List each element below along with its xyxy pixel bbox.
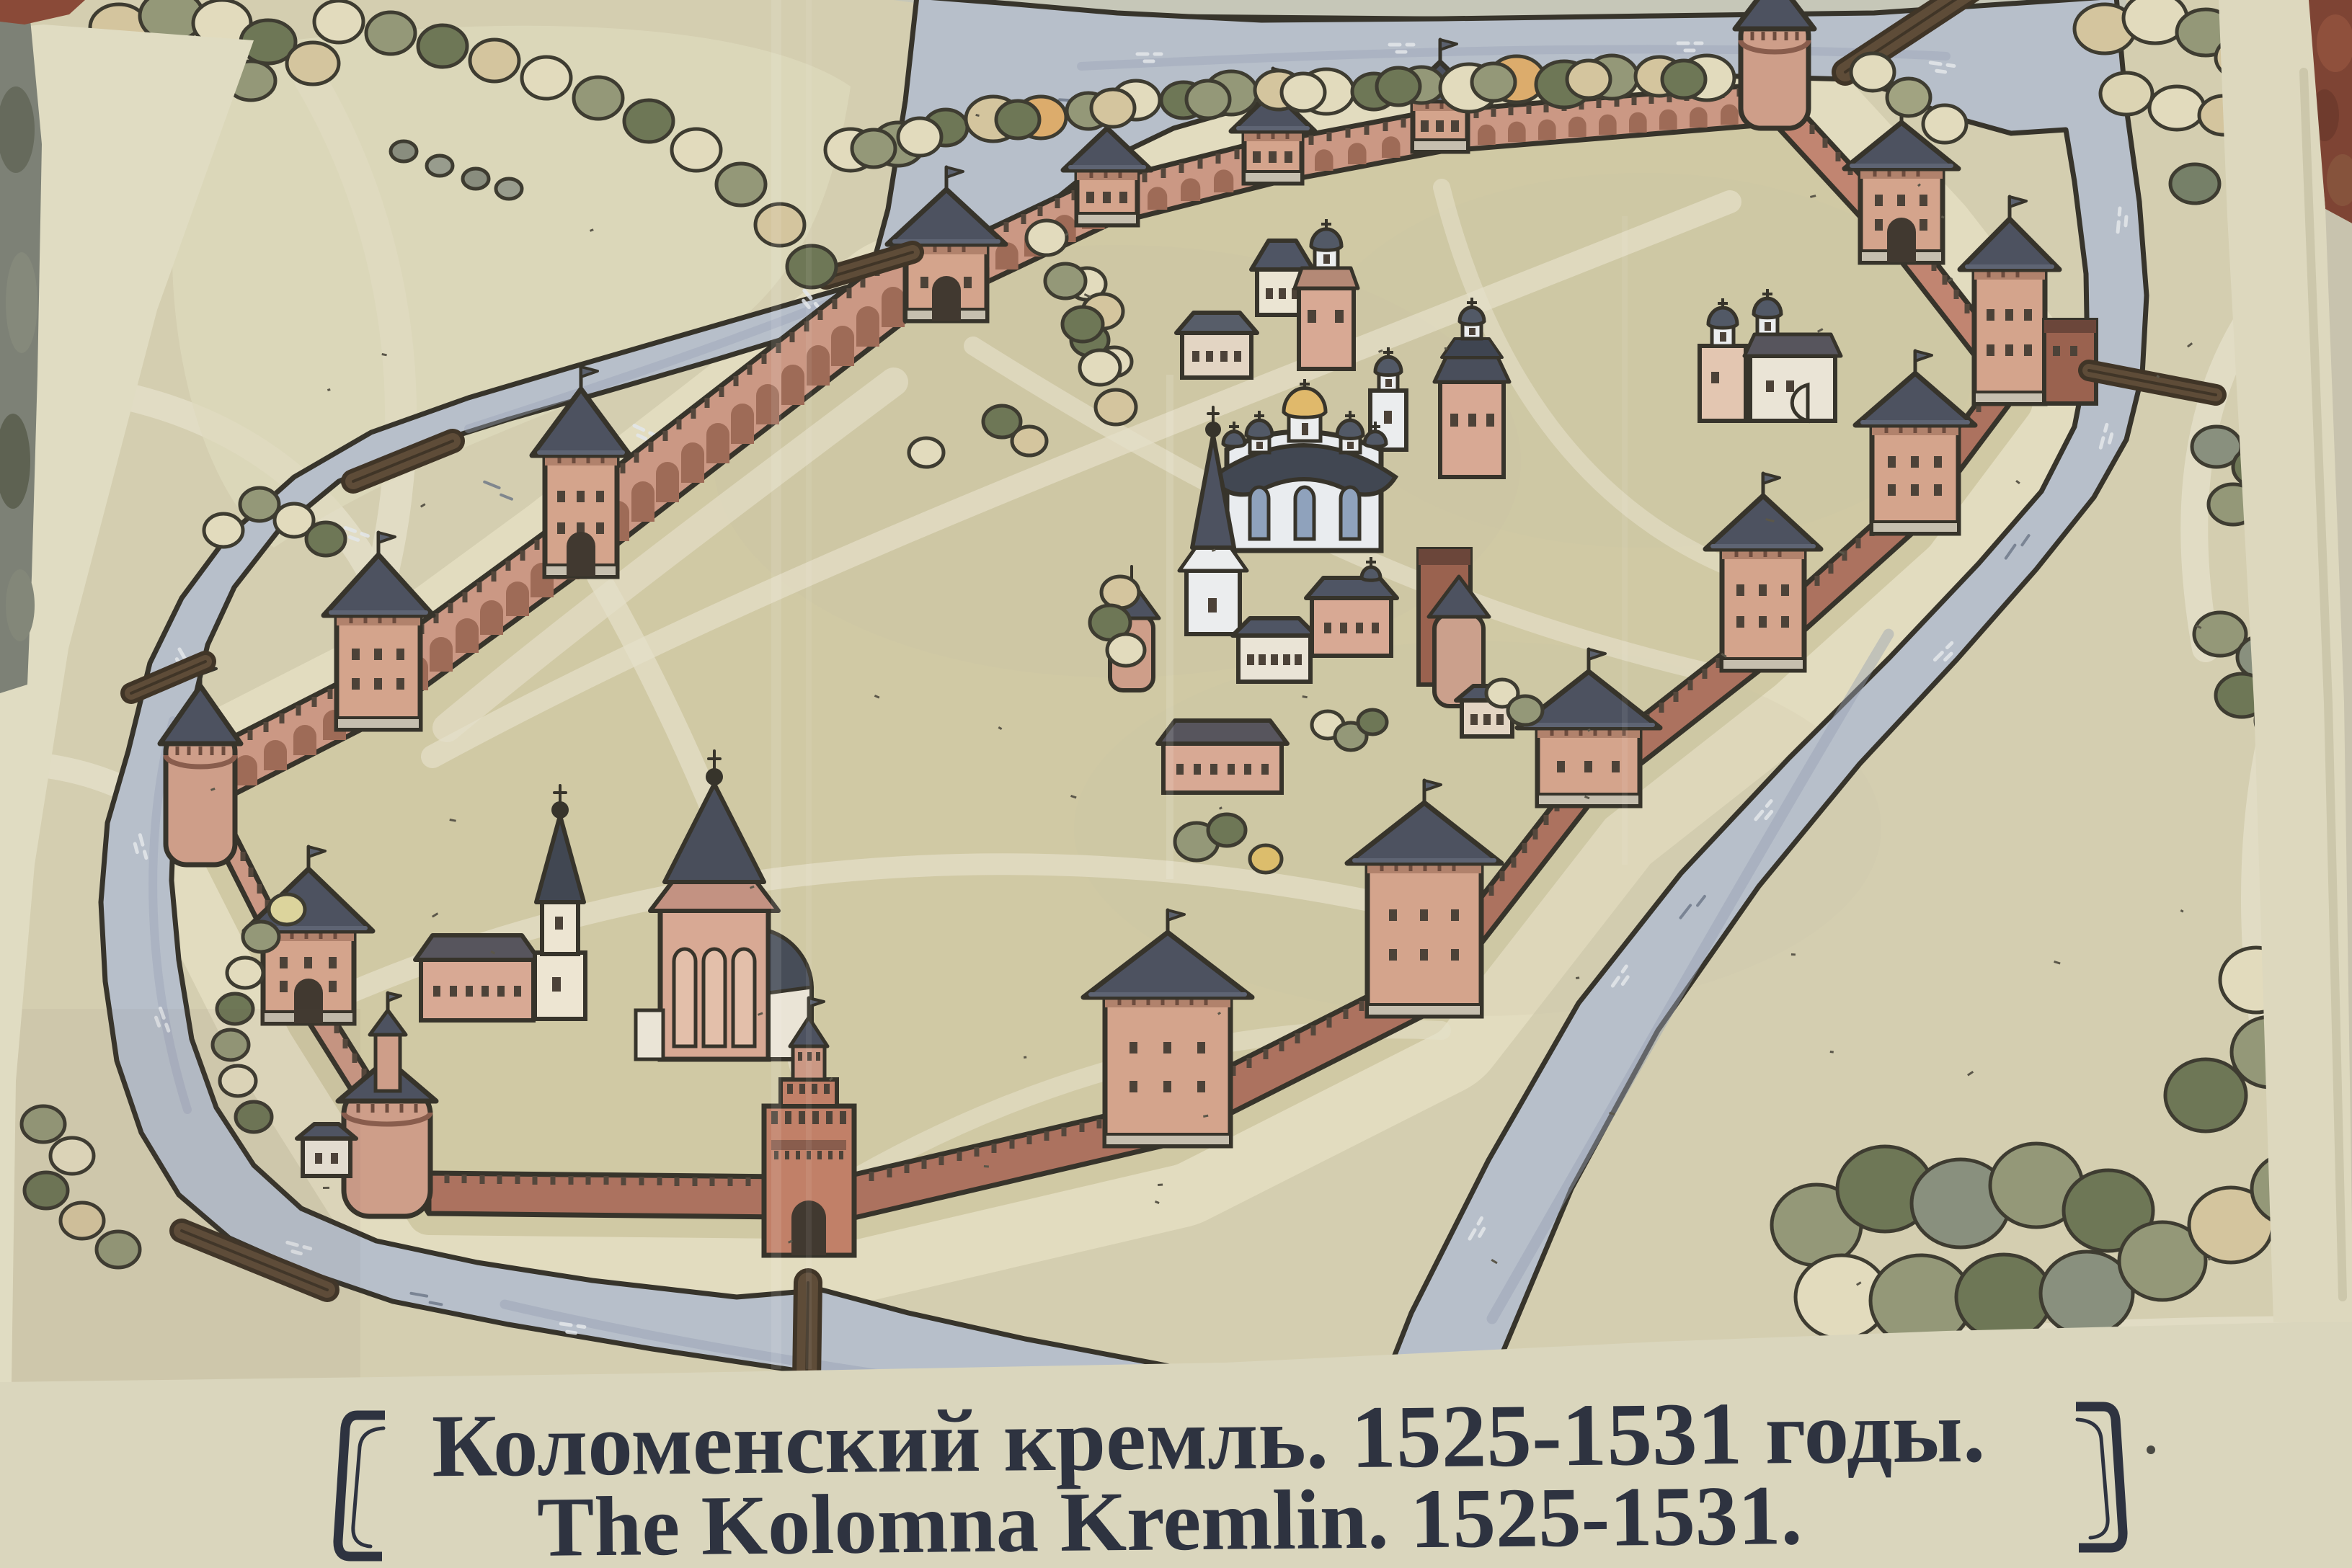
svg-text:The Kolomna Kremlin. 1525-1531: The Kolomna Kremlin. 1525-1531. [537,1468,1803,1568]
